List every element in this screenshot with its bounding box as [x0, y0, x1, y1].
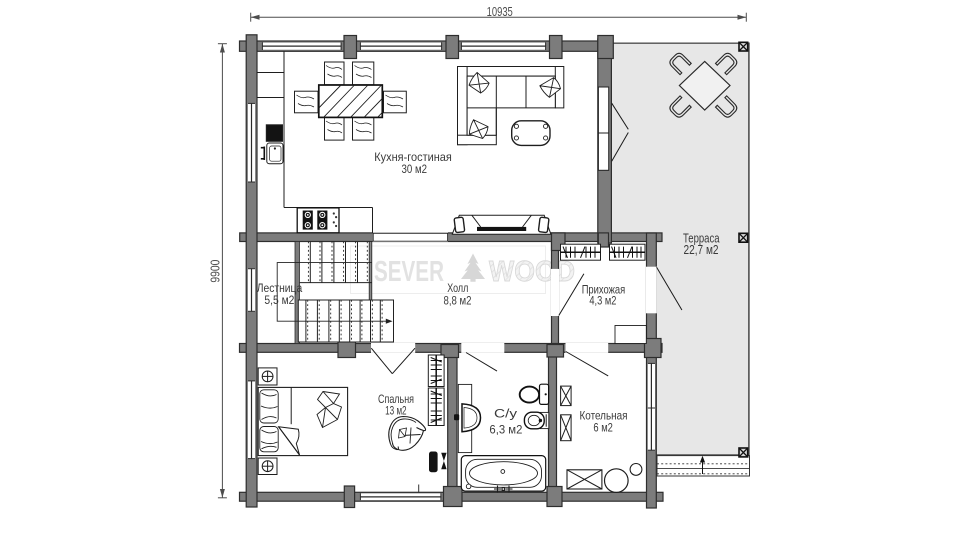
- svg-text:С/у: С/у: [494, 407, 518, 421]
- svg-text:6,3 м2: 6,3 м2: [489, 423, 522, 437]
- svg-text:WOOD: WOOD: [489, 256, 575, 288]
- svg-text:SEVER: SEVER: [374, 256, 444, 288]
- svg-text:4,3 м2: 4,3 м2: [589, 294, 616, 308]
- svg-text:5,5 м2: 5,5 м2: [264, 293, 294, 307]
- svg-text:13 м2: 13 м2: [385, 404, 407, 418]
- svg-text:9900: 9900: [209, 260, 223, 283]
- svg-text:22,7 м2: 22,7 м2: [684, 242, 719, 257]
- svg-text:8,8 м2: 8,8 м2: [444, 294, 472, 308]
- svg-text:6 м2: 6 м2: [593, 421, 613, 435]
- svg-text:10935: 10935: [487, 5, 513, 19]
- svg-text:30 м2: 30 м2: [402, 162, 428, 176]
